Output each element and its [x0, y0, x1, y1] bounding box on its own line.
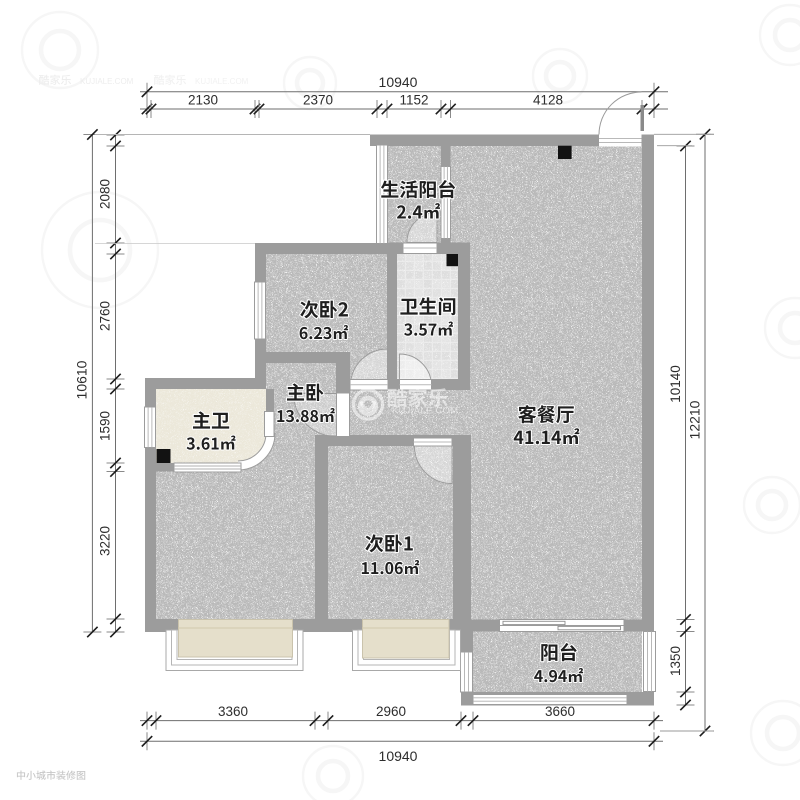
svg-text:KUJIALE.COM: KUJIALE.COM: [392, 406, 458, 416]
svg-text:4128: 4128: [533, 93, 563, 108]
svg-text:3360: 3360: [218, 704, 248, 719]
svg-text:3660: 3660: [545, 704, 575, 719]
svg-text:1152: 1152: [399, 93, 428, 108]
svg-text:2960: 2960: [376, 704, 406, 719]
svg-text:3220: 3220: [98, 526, 113, 556]
svg-text:10140: 10140: [668, 365, 683, 403]
svg-text:1350: 1350: [668, 646, 683, 676]
svg-text:2130: 2130: [188, 93, 218, 108]
svg-text:12210: 12210: [687, 400, 703, 439]
svg-text:10940: 10940: [379, 748, 418, 764]
svg-text:KUJIALE.COM: KUJIALE.COM: [195, 77, 249, 86]
svg-text:2370: 2370: [303, 93, 333, 108]
svg-text:2080: 2080: [98, 179, 113, 209]
svg-text:10940: 10940: [379, 74, 418, 90]
svg-text:KUJIALE.COM: KUJIALE.COM: [80, 77, 134, 86]
svg-text:1590: 1590: [98, 411, 113, 441]
svg-text:10610: 10610: [74, 360, 90, 399]
svg-text:2760: 2760: [98, 301, 113, 331]
